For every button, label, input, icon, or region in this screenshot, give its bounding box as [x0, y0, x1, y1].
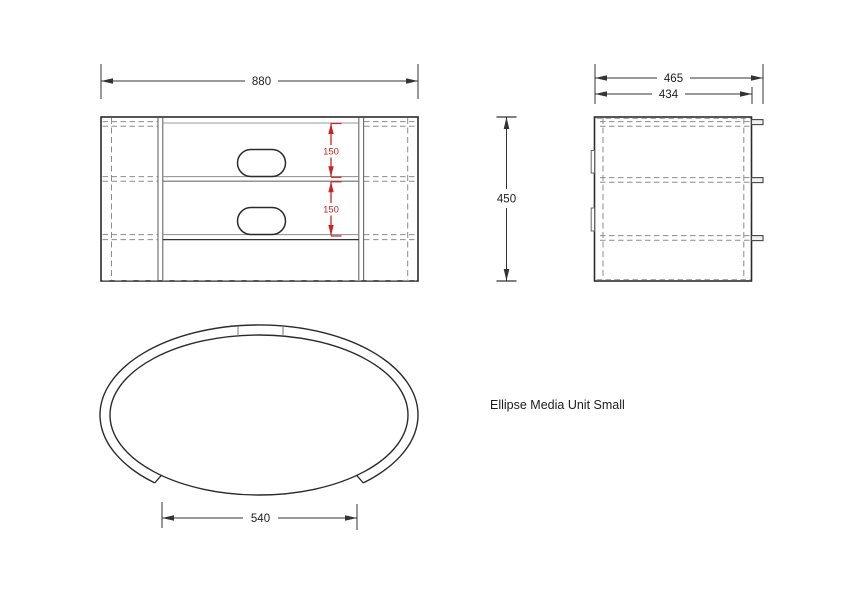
plan-band-end-right	[357, 475, 364, 483]
drawing-title: Ellipse Media Unit Small	[490, 398, 625, 412]
side-front-notch-upper	[591, 151, 594, 174]
plan-outer-band	[100, 325, 418, 483]
plan-view: 540	[100, 325, 418, 530]
side-shelf-tab-bottom	[752, 236, 764, 241]
front-dim-width-label: 880	[252, 76, 271, 88]
front-outline	[101, 117, 418, 281]
front-dim-shelf-spacing-1: 150	[323, 124, 341, 178]
plan-band-end-left	[155, 475, 162, 483]
front-dim-shelf2-label: 150	[323, 205, 339, 216]
side-dim-depth-body-label: 434	[659, 89, 679, 101]
side-front-notch-lower	[591, 208, 594, 231]
front-hidden-shelves-left	[103, 122, 158, 240]
side-dim-height: 450	[497, 117, 517, 281]
front-cable-cutout-lower	[238, 208, 286, 235]
side-dim-depth-overall-label: 465	[664, 73, 683, 85]
side-hidden-shelves	[597, 118, 751, 280]
side-dim-depth-body: 434	[595, 87, 752, 104]
plan-dim-front-opening-label: 540	[251, 513, 270, 525]
front-view: 880 150 150	[101, 64, 418, 281]
side-shelf-tab-top	[752, 120, 764, 125]
front-dim-shelf-spacing-2: 150	[323, 182, 341, 236]
technical-drawing: 880 150 150	[0, 0, 846, 595]
side-dim-depth-overall: 465	[595, 64, 763, 104]
plan-dim-front-opening: 540	[162, 502, 357, 530]
front-dim-shelf1-label: 150	[323, 147, 339, 158]
side-shelf-tab-middle	[752, 178, 764, 183]
side-outline	[595, 117, 752, 281]
front-dim-width: 880	[101, 64, 418, 99]
side-view: 465 434 450	[497, 64, 764, 281]
front-hidden-shelves-right	[364, 122, 417, 240]
drawing-canvas: 880 150 150	[0, 0, 846, 595]
front-cable-cutout-upper	[238, 150, 286, 177]
plan-top-ellipse	[110, 335, 408, 495]
side-dim-height-label: 450	[497, 194, 516, 206]
